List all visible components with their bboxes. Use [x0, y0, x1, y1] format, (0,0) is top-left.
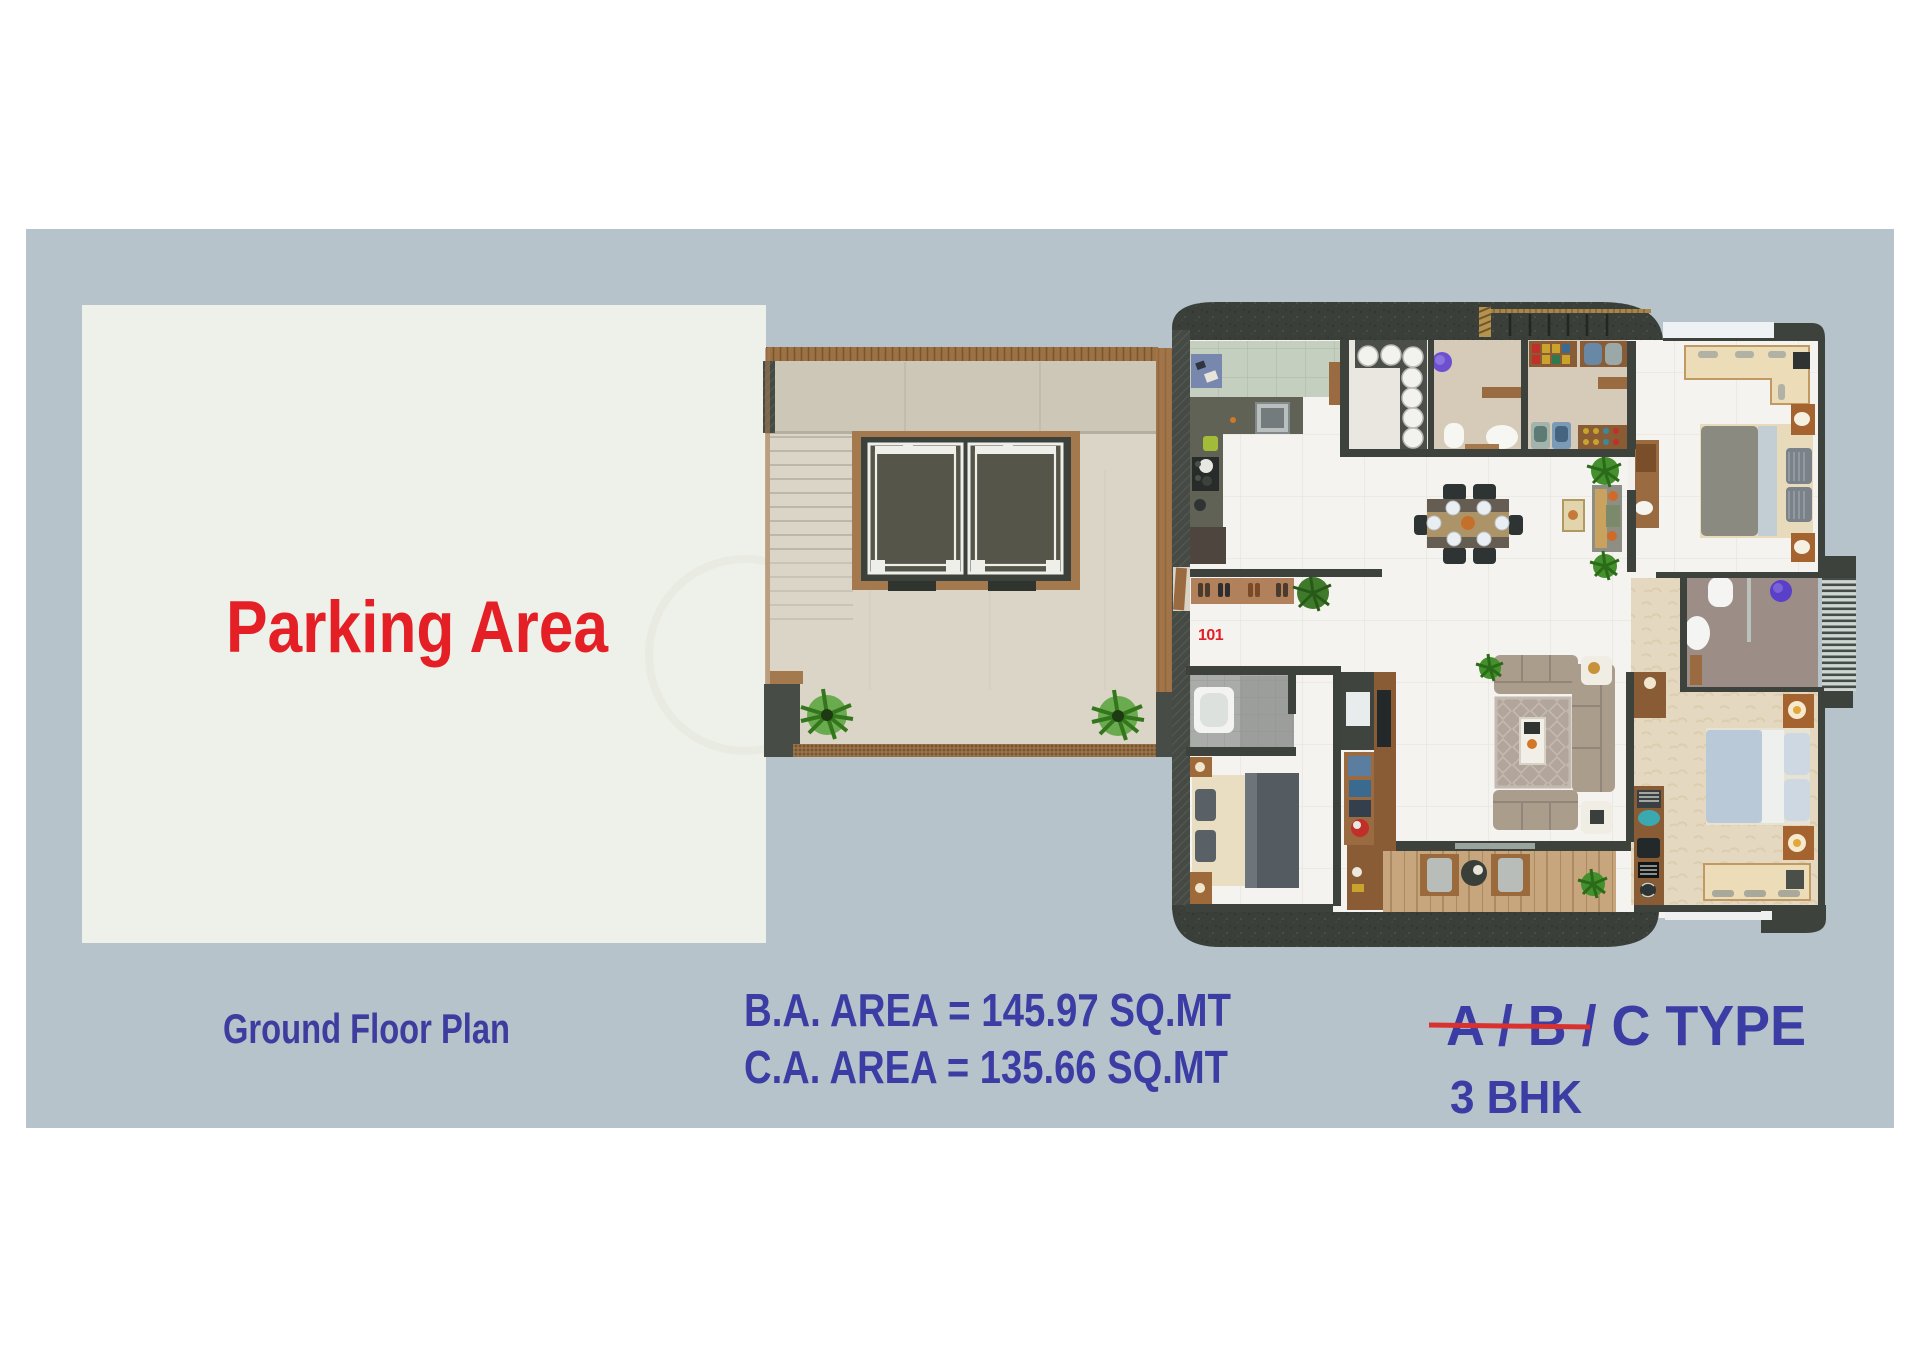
svg-text:101: 101 — [1198, 627, 1224, 644]
svg-text:B.A. AREA = 145.97 SQ.MT: B.A. AREA = 145.97 SQ.MT — [744, 984, 1231, 1036]
svg-text:Parking Area: Parking Area — [226, 587, 609, 668]
svg-text:C.A. AREA = 135.66 SQ.MT: C.A. AREA = 135.66 SQ.MT — [744, 1041, 1228, 1093]
svg-text:3 BHK: 3 BHK — [1450, 1071, 1582, 1123]
svg-text:Ground Floor Plan: Ground Floor Plan — [223, 1005, 510, 1052]
